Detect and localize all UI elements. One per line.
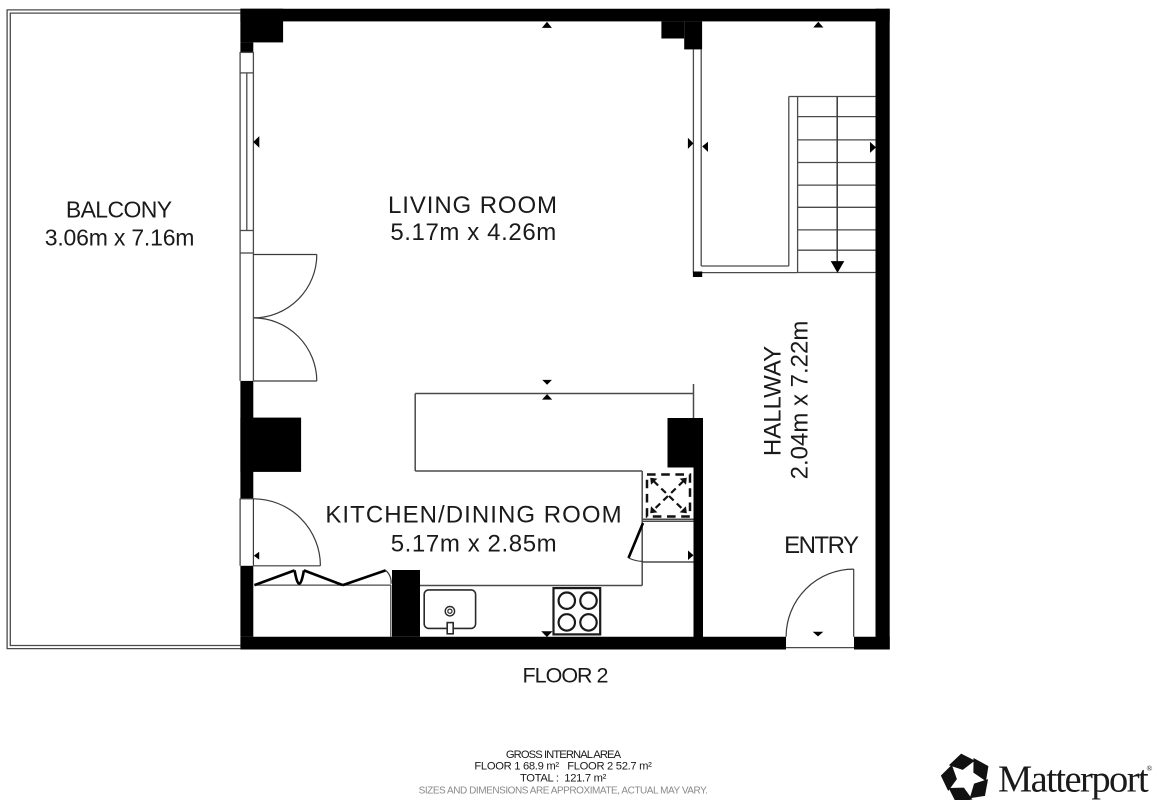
svg-text:5.17m x 4.26m: 5.17m x 4.26m xyxy=(390,219,557,246)
svg-text:GROSS INTERNAL AREA: GROSS INTERNAL AREA xyxy=(506,749,622,761)
svg-text:BALCONY: BALCONY xyxy=(66,197,172,223)
svg-text:3.06m x 7.16m: 3.06m x 7.16m xyxy=(45,225,195,251)
svg-text:KITCHEN/DINING ROOM: KITCHEN/DINING ROOM xyxy=(325,502,622,529)
svg-text:FLOOR 1 68.9 m² FLOOR 2 52.7: FLOOR 1 68.9 m² FLOOR 2 52.7 m² xyxy=(474,761,652,773)
svg-text:SIZES AND DIMENSIONS ARE APPRO: SIZES AND DIMENSIONS ARE APPROXIMATE, AC… xyxy=(419,785,708,796)
svg-text:5.17m x 2.85m: 5.17m x 2.85m xyxy=(391,531,558,558)
svg-text:HALLWAY: HALLWAY xyxy=(760,346,787,456)
svg-text:TOTAL : 121.7 m²: TOTAL : 121.7 m² xyxy=(520,772,607,784)
svg-text:®: ® xyxy=(1147,764,1153,773)
svg-text:LIVING ROOM: LIVING ROOM xyxy=(388,192,558,219)
svg-text:2.04m x 7.22m: 2.04m x 7.22m xyxy=(787,321,814,480)
svg-text:Matterport: Matterport xyxy=(998,759,1149,800)
svg-text:FLOOR 2: FLOOR 2 xyxy=(523,664,608,688)
svg-text:ENTRY: ENTRY xyxy=(784,532,859,559)
